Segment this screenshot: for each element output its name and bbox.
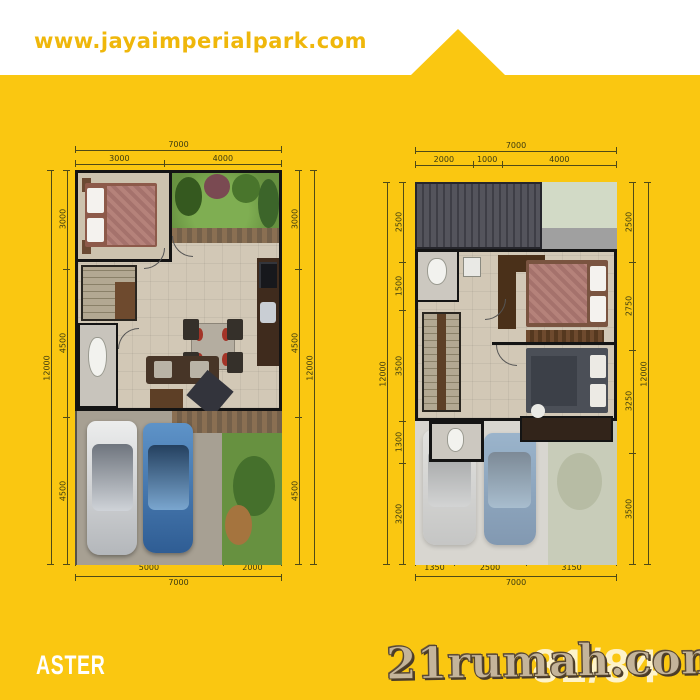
dim-label: 3250 xyxy=(625,391,634,411)
car-cabin xyxy=(92,444,133,511)
dim-upper-top-segments: 2000 1000 4000 xyxy=(415,154,617,168)
dim-label: 1300 xyxy=(395,432,404,452)
dim-label: 3200 xyxy=(395,504,404,524)
ghost-garden xyxy=(548,421,617,565)
bush xyxy=(225,505,252,545)
door-arc xyxy=(118,328,139,349)
dim-label: 3000 xyxy=(75,154,164,163)
upper-house xyxy=(415,249,617,421)
blanket xyxy=(531,356,577,405)
toilet xyxy=(88,337,107,378)
stove xyxy=(259,262,277,288)
dim-ground-bottom-total: 7000 xyxy=(75,574,282,588)
toilet xyxy=(447,428,465,451)
dim-label: 2000 xyxy=(415,155,473,164)
upper-floor-plan xyxy=(415,182,617,565)
plant xyxy=(204,174,230,199)
chair xyxy=(227,319,243,340)
ghost-blue-car xyxy=(484,433,537,545)
car-cabin xyxy=(488,452,531,508)
bathroom xyxy=(78,323,118,408)
dim-label: 1000 xyxy=(473,155,502,164)
dim-label: 12000 xyxy=(640,361,649,386)
upper-staircase xyxy=(422,312,461,412)
header-band: www.jayaimperialpark.com xyxy=(0,0,700,75)
cushion xyxy=(154,361,173,378)
chair xyxy=(227,352,243,373)
dim-label: 4000 xyxy=(164,154,282,163)
blue-car xyxy=(143,423,193,553)
triangle-decoration xyxy=(411,29,505,75)
plant xyxy=(175,177,203,216)
plant xyxy=(258,179,279,228)
dim-label: 12000 xyxy=(43,355,52,380)
side-garden xyxy=(222,433,282,565)
bed-double xyxy=(85,183,156,247)
dim-label: 7000 xyxy=(75,578,282,587)
kitchen-sink xyxy=(260,302,276,323)
desk-chair xyxy=(531,404,545,418)
stair-rail xyxy=(437,314,447,410)
dim-ground-left-total: 12000 xyxy=(40,170,54,565)
dim-upper-right-segments: 2500 2750 3250 3500 xyxy=(622,182,636,565)
dim-label: 2500 xyxy=(625,212,634,232)
upper-bathroom xyxy=(418,252,459,302)
plant xyxy=(232,174,260,202)
website-url: www.jayaimperialpark.com xyxy=(34,29,367,53)
dim-label: 4500 xyxy=(59,333,68,353)
staircase xyxy=(81,265,137,321)
blanket xyxy=(107,186,156,245)
dim-label: 12000 xyxy=(379,361,388,386)
roof-edge-strip xyxy=(542,228,617,249)
sink xyxy=(463,257,481,277)
pillow xyxy=(590,384,606,407)
toilet xyxy=(427,258,446,285)
pillow xyxy=(590,355,606,378)
blanket xyxy=(529,264,587,323)
door-arc xyxy=(496,345,517,366)
dim-label: 4000 xyxy=(502,155,617,164)
dim-ground-right-segments: 3000 4500 4500 xyxy=(288,170,302,565)
car-cabin xyxy=(148,445,189,510)
watermark: 21rumah.com xyxy=(386,633,700,690)
dim-ground-top-segments: 3000 4000 xyxy=(75,153,282,167)
dim-label: 7000 xyxy=(75,140,282,149)
garden-below-ghost xyxy=(542,182,617,228)
dim-upper-left-total: 12000 xyxy=(376,182,390,565)
lower-bathroom xyxy=(429,421,484,461)
door-arc xyxy=(172,236,193,257)
dim-label: 4500 xyxy=(291,333,300,353)
ground-floor-plan xyxy=(75,170,282,565)
dim-label: 3000 xyxy=(291,209,300,229)
dim-upper-top-total: 7000 xyxy=(415,140,617,154)
dim-label: 12000 xyxy=(306,355,315,380)
dim-ground-left-segments: 3000 4500 4500 xyxy=(56,170,70,565)
dim-label: 4500 xyxy=(291,481,300,501)
dim-label: 3500 xyxy=(395,355,404,375)
dim-ground-right-total: 12000 xyxy=(303,170,317,565)
dim-label: 2500 xyxy=(395,212,404,232)
bed-pink xyxy=(526,260,608,327)
chair xyxy=(183,319,199,340)
roof xyxy=(415,182,542,249)
bush xyxy=(557,453,602,510)
dim-label: 3000 xyxy=(59,209,68,229)
dim-label: 3500 xyxy=(625,499,634,519)
wardrobe xyxy=(498,255,516,328)
pillow xyxy=(590,266,606,291)
pillow xyxy=(590,296,606,321)
desk xyxy=(520,416,613,443)
dim-upper-right-total: 12000 xyxy=(637,182,651,565)
dim-label: 1500 xyxy=(395,276,404,296)
stair-landing xyxy=(115,282,135,319)
dim-upper-bottom-total: 7000 xyxy=(415,574,617,588)
coffee-table xyxy=(150,389,182,408)
pillow xyxy=(87,188,104,212)
silver-car xyxy=(87,421,137,555)
dim-upper-left-segments: 2500 1500 3500 1300 3200 xyxy=(392,182,406,565)
dim-label: 2750 xyxy=(625,295,634,315)
dim-label: 7000 xyxy=(415,141,617,150)
bed-bench xyxy=(526,330,604,342)
dim-ground-top-total: 7000 xyxy=(75,139,282,153)
dim-label: 4500 xyxy=(59,481,68,501)
unit-name: ASTER xyxy=(36,650,105,681)
rear-garden xyxy=(172,173,279,243)
pillow xyxy=(87,218,104,242)
ground-house xyxy=(75,170,282,411)
dim-label: 7000 xyxy=(415,578,617,587)
